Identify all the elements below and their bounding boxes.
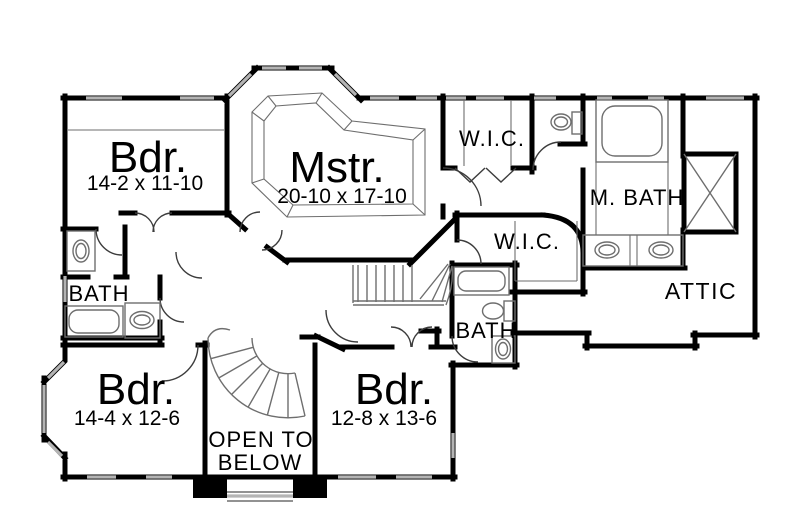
open-to-below-label-line1: OPEN TO [208,427,313,452]
master-bath-label: M. BATH [590,185,685,210]
attic-label: ATTIC [665,278,737,304]
bath2-label: BATH [455,318,516,343]
straight-staircase [353,264,452,305]
bedroom3-dims: 12-8 x 13-6 [331,407,437,430]
wic1-label: W.I.C. [459,126,525,151]
floor-plan-drawing: Bdr. 14-2 x 11-10 Mstr. 20-10 x 17-10 W.… [0,0,800,525]
open-to-below-label-line2: BELOW [218,450,302,475]
bath1-sink-icon [125,303,160,338]
wic2-label: W.I.C. [494,229,560,254]
bedroom1-dims: 14-2 x 11-10 [87,172,203,195]
bath1-label: BATH [68,281,129,306]
bedroom2-dims: 14-4 x 12-6 [74,407,180,430]
attic-shaft-icon [684,154,736,232]
bath2-tub-icon [454,267,509,295]
toilet-room-toilet-icon [551,112,582,134]
master-dims: 20-10 x 17-10 [277,185,407,208]
hall-vanity-sink-icon [67,231,95,271]
master-tub-icon [596,100,668,235]
bath1-tub-icon [65,306,123,337]
floor-plan-screenshot: Bdr. 14-2 x 11-10 Mstr. 20-10 x 17-10 W.… [0,0,800,525]
master-double-vanity-icon [583,235,683,266]
curved-staircase [208,329,305,418]
